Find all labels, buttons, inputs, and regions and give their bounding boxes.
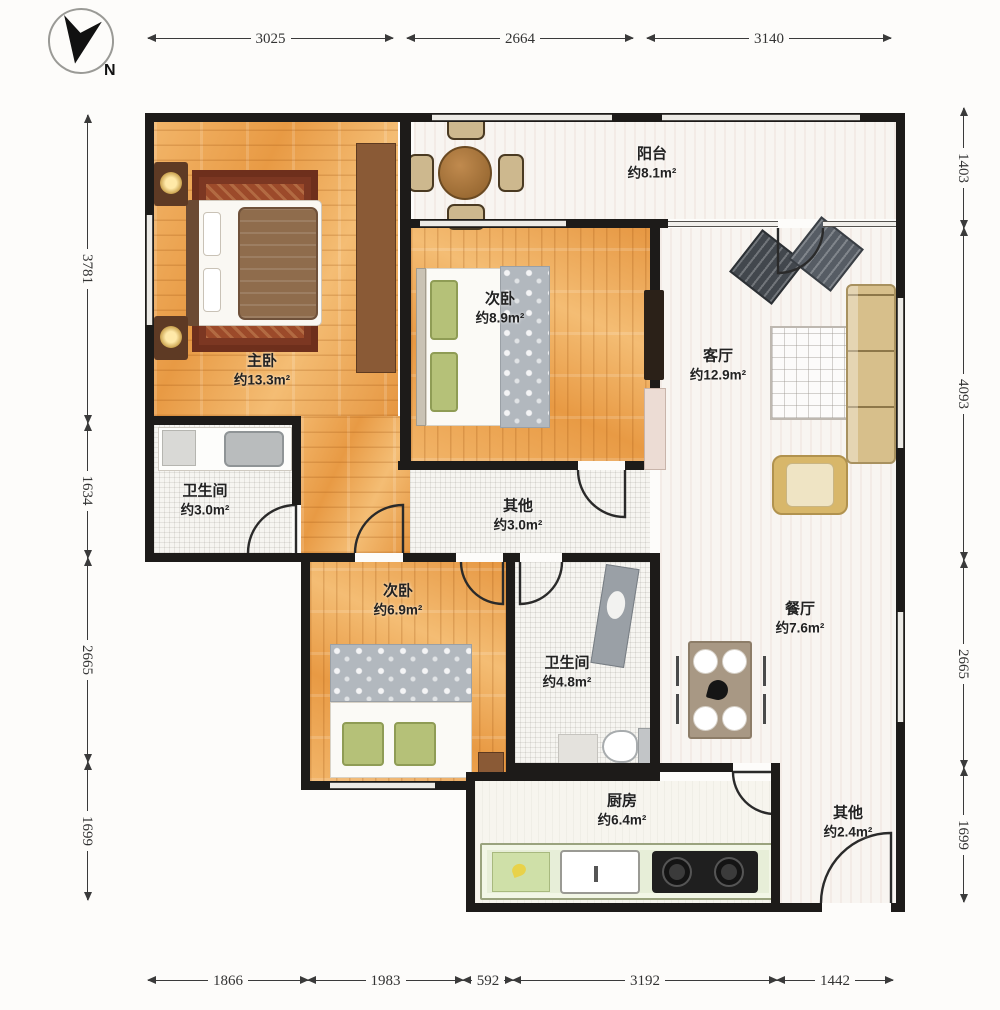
wall	[398, 461, 578, 470]
wall	[292, 416, 301, 505]
tv-cabinet	[644, 388, 666, 470]
door-arc-bath2	[520, 562, 562, 604]
door-arc-bedroom3-hall	[355, 505, 403, 553]
room-label-other1: 其他 约3.0m²	[494, 496, 543, 533]
wall	[145, 553, 310, 562]
wall	[145, 113, 154, 562]
room-label-master: 主卧 约13.3m²	[234, 351, 290, 388]
dim-bottom-3: 592	[463, 972, 513, 990]
balcony-railing	[823, 221, 896, 227]
balcony-railing	[668, 221, 778, 227]
dim-left-3: 2665	[78, 558, 96, 762]
room-label-balcony: 阳台 约8.1m²	[628, 144, 677, 181]
room-label-dining: 餐厅 约7.6m²	[776, 599, 825, 636]
compass-north-label: N	[104, 62, 116, 80]
wall	[145, 416, 301, 425]
wall	[660, 763, 733, 772]
room-label-living: 客厅 约12.9m²	[690, 346, 746, 383]
wall	[891, 903, 905, 912]
room-label-bedroom3: 次卧 约6.9m²	[374, 581, 423, 618]
dim-left-2: 1634	[78, 423, 96, 558]
room-label-bath2: 卫生间 约4.8m²	[543, 653, 592, 690]
dim-top-2: 2664	[407, 30, 633, 48]
room-label-other2: 其他 约2.4m²	[824, 803, 873, 840]
door-arc-entry	[821, 833, 891, 903]
wall	[403, 553, 456, 562]
dim-right-4: 1699	[954, 768, 972, 902]
wall	[771, 763, 780, 912]
wall	[650, 553, 660, 781]
window	[432, 114, 612, 121]
wall	[466, 781, 475, 912]
compass-north-icon: N	[46, 6, 120, 92]
door-arc-bedroom2	[578, 470, 625, 517]
door-arc-bath1	[248, 505, 296, 553]
dim-bottom-2: 1983	[308, 972, 463, 990]
wall	[896, 113, 905, 912]
wall	[466, 903, 822, 912]
dim-top-1: 3025	[148, 30, 393, 48]
wall	[145, 113, 410, 122]
dim-bottom-1: 1866	[148, 972, 308, 990]
wall	[506, 763, 660, 772]
room-label-kitchen: 厨房 约6.4m²	[598, 791, 647, 828]
window	[420, 220, 566, 227]
wall	[466, 772, 660, 781]
wall	[506, 553, 515, 772]
door-arc-balcony	[778, 228, 823, 273]
wall	[400, 113, 411, 470]
window	[330, 782, 435, 789]
wall	[562, 553, 660, 562]
dim-bottom-4: 3192	[513, 972, 777, 990]
door-arc-bedroom3	[461, 562, 503, 604]
dim-right-2: 4093	[954, 228, 972, 560]
room-label-bedroom2: 次卧 约8.9m²	[476, 289, 525, 326]
door-arc-kitchen	[733, 772, 775, 814]
dim-right-1: 1403	[954, 108, 972, 228]
window	[897, 612, 904, 722]
wall	[301, 553, 310, 790]
tv	[644, 290, 664, 380]
dim-bottom-5: 1442	[777, 972, 893, 990]
window	[146, 215, 153, 325]
window	[897, 298, 904, 448]
dim-right-3: 2665	[954, 560, 972, 768]
dim-top-3: 3140	[647, 30, 891, 48]
dim-left-4: 1699	[78, 762, 96, 900]
floor-plan: N	[0, 0, 1000, 1010]
dim-left-1: 3781	[78, 115, 96, 423]
room-label-bath1: 卫生间 约3.0m²	[181, 481, 230, 518]
window	[662, 114, 860, 121]
